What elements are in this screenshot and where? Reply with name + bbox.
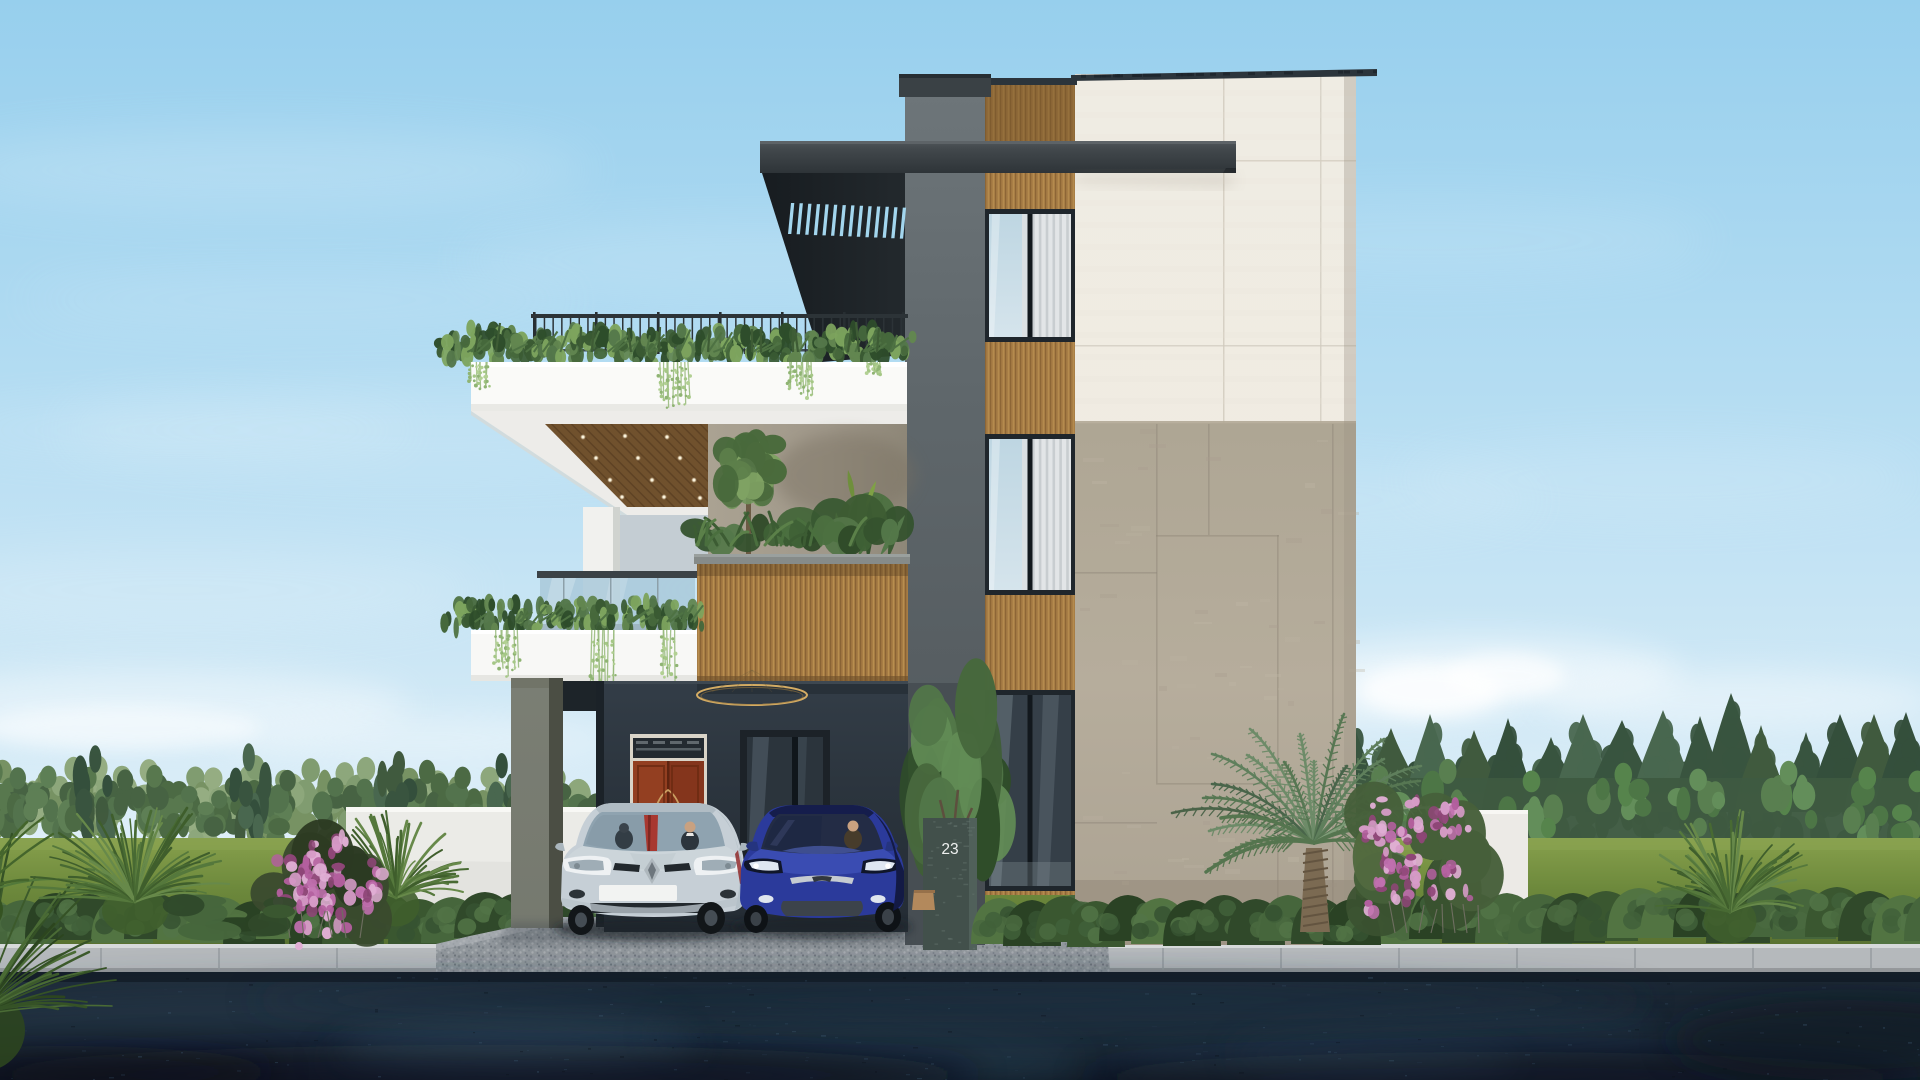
svg-text:23: 23 (941, 841, 958, 858)
